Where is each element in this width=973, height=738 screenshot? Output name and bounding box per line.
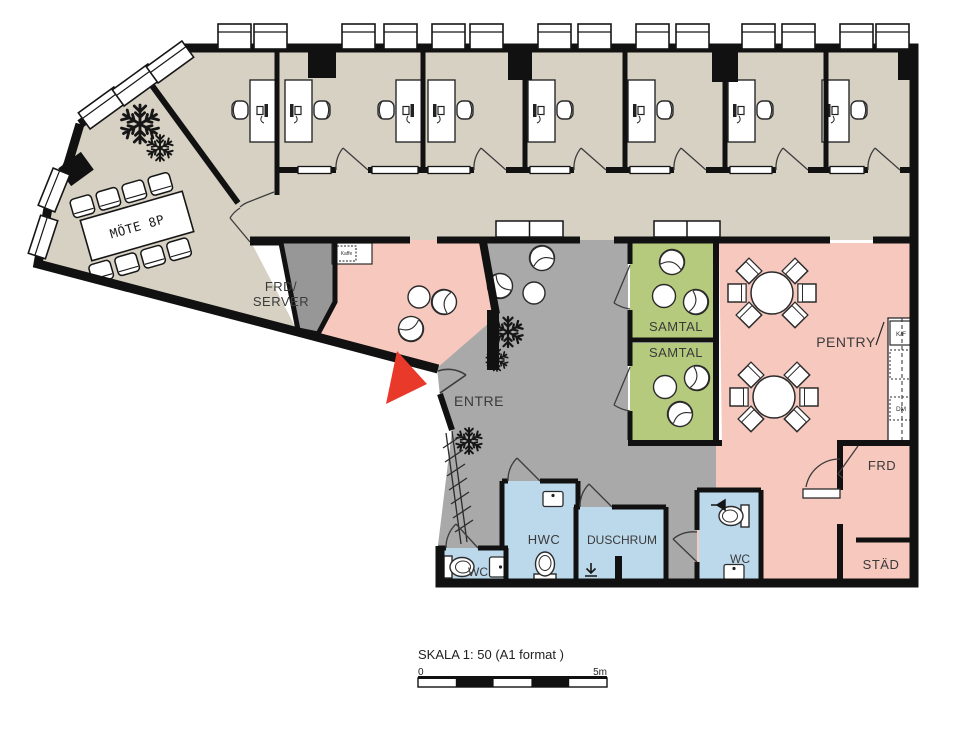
office-chair-icon [378, 101, 394, 119]
coffee-station: Kaffe [332, 243, 372, 264]
window-icon [218, 24, 251, 49]
window-icon [676, 24, 709, 49]
label-dm: DM [896, 406, 906, 413]
office-chair-icon [457, 101, 473, 119]
office-chair-icon [557, 101, 573, 119]
floor-plan-svg: MÖTE 8P [0, 0, 973, 738]
window-icon [432, 24, 465, 49]
office-chair-icon [657, 101, 673, 119]
room-label-pentry: PENTRY [816, 334, 876, 350]
room-label-stad: STÄD [863, 557, 900, 572]
room-label-wc-right: WC [730, 552, 750, 566]
window-icon [636, 24, 669, 49]
round-table [751, 272, 793, 314]
sink-icon [543, 492, 563, 507]
window-icon [782, 24, 815, 49]
sink-icon [490, 557, 505, 577]
room-label-wc-left: WC [468, 565, 488, 579]
chair-icon [728, 284, 746, 302]
side-table [653, 285, 676, 308]
window-icon [538, 24, 571, 49]
floor-plan-page: MÖTE 8P [0, 0, 973, 738]
window-icon [742, 24, 775, 49]
window-icon [840, 24, 873, 49]
label-kaffe: Kaffe [341, 251, 353, 257]
chair-icon [800, 388, 818, 406]
room-label-frd: FRD [868, 458, 896, 473]
label-kf: K/F [896, 331, 906, 338]
side-table [408, 286, 430, 308]
round-table [753, 376, 795, 418]
window-icon [470, 24, 503, 49]
chair-icon [730, 388, 748, 406]
chair-icon [798, 284, 816, 302]
office-chair-icon [851, 101, 867, 119]
room-label-entre: ENTRE [454, 393, 504, 409]
sink-icon [724, 565, 744, 580]
window-icon [342, 24, 375, 49]
room-label-frd-server-1: FRD/ [265, 279, 297, 294]
room-label-samtal-1: SAMTAL [649, 319, 703, 334]
window-icon [578, 24, 611, 49]
room-label-frd-server-2: SERVER [253, 294, 309, 309]
room-label-samtal-2: SAMTAL [649, 345, 703, 360]
scale-title: SKALA 1: 50 (A1 format ) [418, 647, 564, 662]
scale-bar: SKALA 1: 50 (A1 format ) 0 5m [418, 647, 607, 687]
toilet-icon [534, 552, 556, 582]
office-chair-icon [232, 101, 248, 119]
window-icon [384, 24, 417, 49]
side-table [523, 282, 545, 304]
office-chair-icon [314, 101, 330, 119]
room-label-duschrum: DUSCHRUM [587, 533, 657, 547]
window-icon [254, 24, 287, 49]
room-label-hwc: HWC [528, 532, 561, 547]
side-table [654, 376, 677, 399]
office-chair-icon [757, 101, 773, 119]
window-icon [876, 24, 909, 49]
